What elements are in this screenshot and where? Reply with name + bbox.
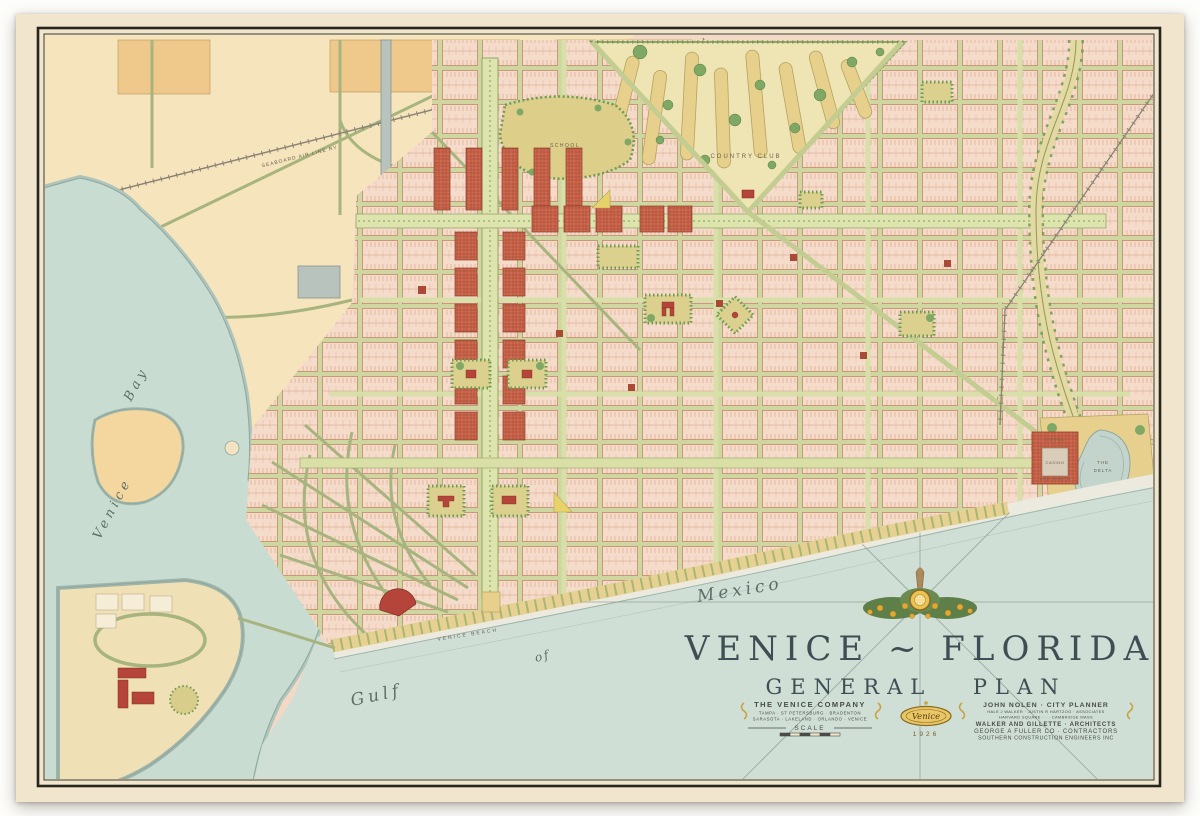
- seal-name: Venice: [912, 712, 940, 722]
- planner-line-4: WALKER AND GILLETTE · ARCHITECTS: [976, 722, 1116, 728]
- planner-credit-block: JOHN NOLEN · CITY PLANNER HALE J WALKER …: [960, 702, 1133, 742]
- planner-line-3: HARVARD SQUARE · · · CAMBRIDGE MASS: [999, 715, 1093, 720]
- planner-line-5: GEORGE A FULLER CO · CONTRACTORS: [974, 729, 1118, 735]
- framed-map-print: Bay Venice Gulf of Mexico COUNTRY CLUB S…: [0, 0, 1200, 816]
- beach-plaza: [482, 592, 500, 612]
- planner-line-2: HALE J WALKER · JUSTIN R HARTZOG · ASSOC…: [987, 709, 1104, 714]
- map-title: VENICE ~ FLORIDA: [684, 629, 1155, 669]
- country-club-label: COUNTRY CLUB: [710, 154, 781, 160]
- hotel-shops-label: AND SHOPS: [1040, 476, 1071, 481]
- seal-year: 1926: [913, 731, 939, 738]
- delta-label-line2: DELTA: [1094, 468, 1113, 473]
- delta-label-line1: THE: [1097, 460, 1109, 465]
- casino-label: CASINO: [1046, 460, 1065, 465]
- peninsula-garden: [170, 686, 198, 714]
- venice-general-plan-map: Bay Venice Gulf of Mexico COUNTRY CLUB S…: [0, 0, 1200, 816]
- hotel-label: HOTEL: [1045, 437, 1065, 442]
- company-name: THE VENICE COMPANY: [754, 700, 866, 709]
- planner-line-6: SOUTHERN CONSTRUCTION ENGINEERS INC: [978, 736, 1114, 742]
- map-subtitle: GENERAL PLAN: [765, 675, 1066, 699]
- company-cities-2: SARASOTA · LAKELAND · ORLANDO · VENICE: [753, 717, 867, 722]
- company-cities-1: TAMPA · ST PETERSBURG · BRADENTON: [759, 711, 861, 716]
- school-label: SCHOOL: [550, 143, 580, 149]
- scale-label: SCALE: [794, 725, 825, 732]
- planner-line-1: JOHN NOLEN · CITY PLANNER: [983, 702, 1109, 709]
- clubhouse-building: [742, 190, 754, 198]
